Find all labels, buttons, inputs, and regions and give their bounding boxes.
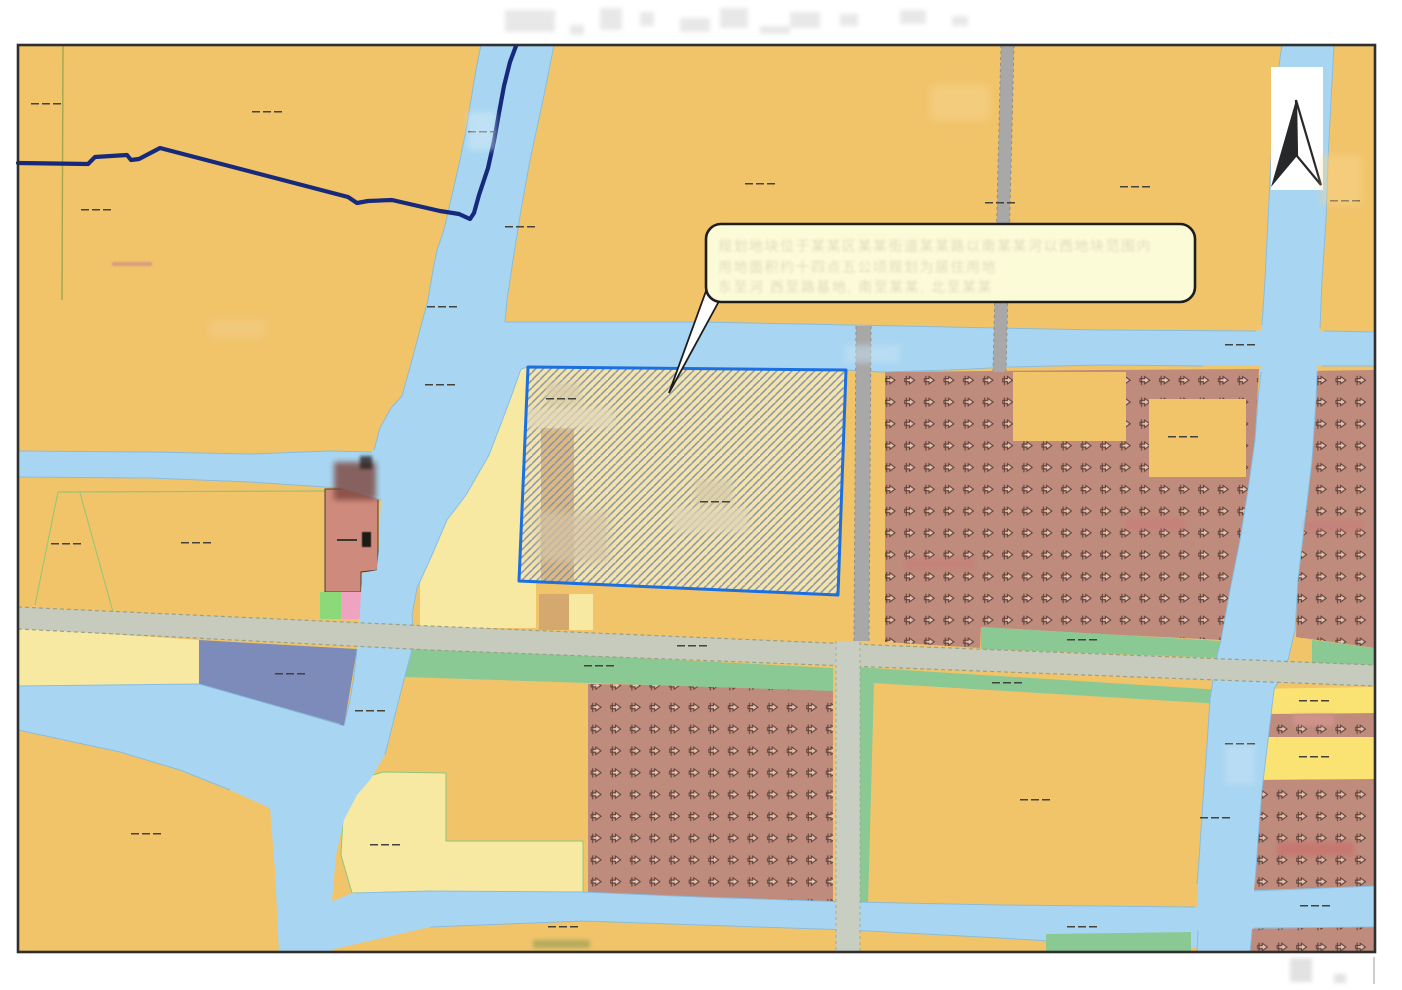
svg-text:规划地块位于某某区某某街道某某路以南某某河以西地块范围内: 规划地块位于某某区某某街道某某路以南某某河以西地块范围内	[718, 238, 1152, 254]
svg-text:用地面积约十四点五公顷规划为居住用地: 用地面积约十四点五公顷规划为居住用地	[718, 259, 997, 275]
svg-text:东至河 西至路基地, 南至某某, 北至某某: 东至河 西至路基地, 南至某某, 北至某某	[718, 279, 993, 295]
